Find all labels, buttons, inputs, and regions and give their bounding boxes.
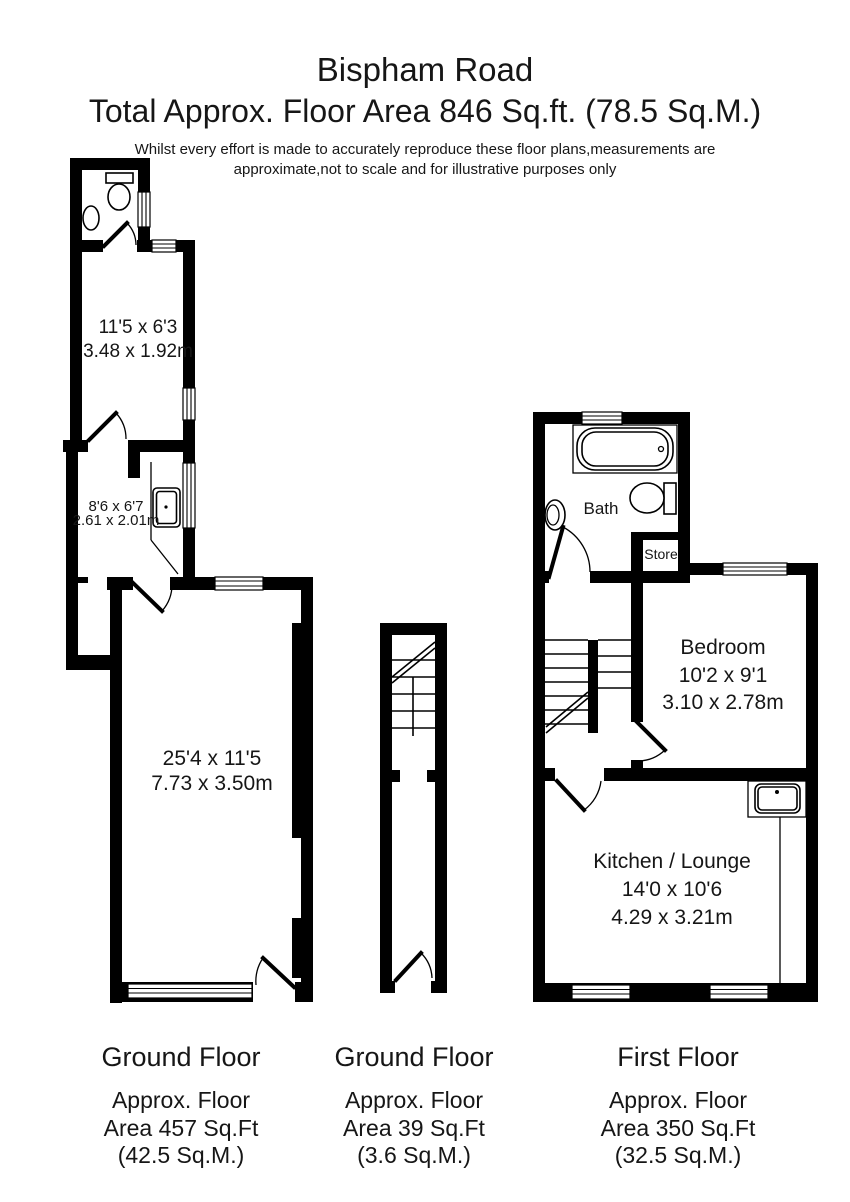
door [256,958,294,987]
floor-summary-ground-hall: Ground Floor Approx. Floor Area 39 Sq.Ft… [284,1044,544,1170]
floor-title: Ground Floor [51,1044,311,1071]
wall [66,445,78,670]
floor-area-line: (42.5 Sq.M.) [51,1142,311,1170]
window [183,463,195,528]
wall [128,452,140,478]
floor-area-line: (32.5 Sq.M.) [548,1142,808,1170]
wall [533,571,549,583]
floor-area-line: Area 457 Sq.Ft [51,1115,311,1143]
window [183,388,195,420]
wall [631,532,643,722]
bathtub [573,425,677,473]
room-dim-label: 2.61 x 2.01m [73,512,160,529]
room-dim-label: 11'5 x 6'3 [99,317,178,338]
plan-ground-floor-hallway [380,623,447,993]
wall-notch [427,770,435,782]
wall-notch [392,770,400,782]
wall [588,640,598,733]
window [572,985,630,999]
room-name-label: Kitchen / Lounge [593,850,751,873]
wall [128,440,195,452]
room-name-label: Bath [584,499,619,518]
wall [533,768,555,781]
door [637,722,665,761]
door [396,953,432,980]
floor-summary-first: First Floor Approx. Floor Area 350 Sq.Ft… [548,1044,808,1170]
wall [82,240,103,252]
wall [806,563,818,1002]
wall [78,577,88,583]
floor-title: Ground Floor [284,1044,544,1071]
floor-area-line: Approx. Floor [51,1087,311,1115]
sink-unit [748,781,806,817]
room-dim-label: 14'0 x 10'6 [622,878,722,901]
plan-ground-floor-main: 11'5 x 6'3 3.48 x 1.92m 8'6 x 6'7 2.61 x… [63,158,313,1003]
sink [83,206,99,230]
wall [107,577,133,590]
wall [295,982,313,1002]
room-dim-label: 25'4 x 11'5 [163,747,262,770]
wall [431,981,447,993]
room-dim-label: 3.10 x 2.78m [662,691,783,714]
room-dim-label: 7.73 x 3.50m [151,772,272,795]
window [215,577,263,590]
wall [435,623,447,993]
door [557,781,601,810]
floorplan-drawing: 11'5 x 6'3 3.48 x 1.92m 8'6 x 6'7 2.61 x… [0,0,850,1202]
toilet [106,173,133,210]
counter-edge [151,540,178,574]
wall [678,412,690,575]
plan-first-floor: Bath Store Bedroom 10'2 x 9'1 3.10 x 2.7… [533,412,818,1002]
window [582,412,622,424]
room-name-label: Bedroom [680,636,765,659]
stairs [392,642,435,736]
wall [70,158,82,452]
chimney-breast [292,623,301,838]
toilet [630,483,676,514]
floor-title: First Floor [548,1044,808,1071]
wall [604,768,818,781]
door [549,527,590,577]
floor-summary-ground-main: Ground Floor Approx. Floor Area 457 Sq.F… [51,1044,311,1170]
floorplan-page: Bispham Road Total Approx. Floor Area 84… [0,0,850,1202]
door [104,223,136,246]
window [723,563,787,575]
floor-area-line: Area 39 Sq.Ft [284,1115,544,1143]
wall [301,590,313,1002]
floor-area-line: Approx. Floor [284,1087,544,1115]
window [128,984,252,998]
room-dim-label: 3.48 x 1.92m [83,341,193,362]
wall [380,981,395,993]
wall [635,532,690,540]
floor-area-line: Approx. Floor [548,1087,808,1115]
wall [533,412,545,1002]
door [133,583,172,611]
floor-area-line: (3.6 Sq.M.) [284,1142,544,1170]
window [152,240,176,252]
room-dim-label: 4.29 x 3.21m [611,906,732,929]
room-dim-label: 10'2 x 9'1 [679,664,768,687]
floor-area-line: Area 350 Sq.Ft [548,1115,808,1143]
window [710,985,768,999]
door [89,413,126,440]
window [138,192,150,227]
wall [380,623,392,993]
chimney-breast [292,918,301,978]
wall [110,577,122,1003]
room-name-label: Store [644,546,678,562]
